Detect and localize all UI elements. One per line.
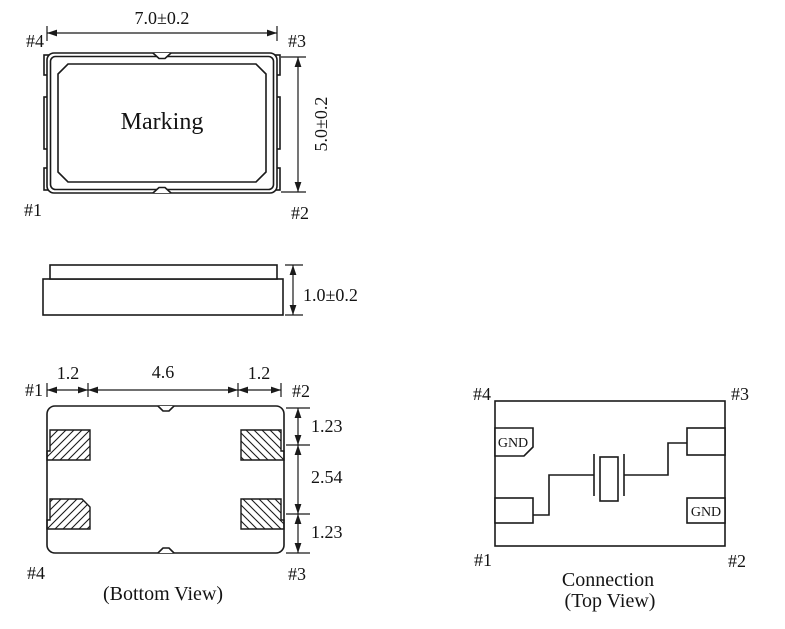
top-view-package-outline: Marking (44, 53, 280, 193)
pad-span-label: 4.6 (152, 362, 175, 382)
bottom-view-pin2-label: #2 (292, 381, 310, 401)
top-view-pin4-label: #4 (26, 31, 44, 51)
side-view-thickness-dimension: 1.0±0.2 (285, 265, 358, 315)
connection-pin3-label: #3 (731, 384, 749, 404)
bottom-view-pin1-label: #1 (25, 380, 43, 400)
top-view-pin3-label: #3 (288, 31, 306, 51)
gnd-label-pin4: GND (498, 436, 528, 451)
top-view-width-dimension: 7.0±0.2 (47, 8, 277, 41)
top-view-height-label: 5.0±0.2 (311, 97, 331, 152)
top-view-pin1-label: #1 (24, 200, 42, 220)
bottom-view-pin4-label: #4 (27, 563, 45, 583)
bottom-view-body (47, 406, 284, 553)
bottom-view-pin3-label: #3 (288, 564, 306, 584)
side-view-lid (50, 265, 277, 279)
pad-3 (241, 499, 284, 529)
connection-pad3 (687, 428, 725, 455)
bottom-view-package-outline (47, 406, 284, 553)
pad-1 (47, 430, 90, 460)
top-view-height-dimension: 5.0±0.2 (281, 57, 331, 192)
gnd-label-pin2: GND (691, 505, 721, 520)
connection-pad1 (495, 498, 533, 523)
connection-pin4-label: #4 (473, 384, 491, 404)
pad-pitch-top-label: 1.23 (311, 416, 343, 436)
side-view: 1.0±0.2 (43, 265, 358, 315)
connection-pin1-label: #1 (474, 550, 492, 570)
side-view-thickness-label: 1.0±0.2 (303, 285, 358, 305)
drawing-canvas: 7.0±0.2 Marking 5.0±0.2 #4 #3 #1 # (0, 0, 785, 624)
pad-pitch-bottom-label: 1.23 (311, 522, 343, 542)
bottom-view: 1.2 4.6 1.2 1.23 2.54 1.23 # (25, 362, 343, 605)
package-outline-drawing: 7.0±0.2 Marking 5.0±0.2 #4 #3 #1 # (0, 0, 785, 624)
connection-view: GND GND #4 #3 #1 #2 Connection (Top View… (473, 384, 749, 612)
pad-pitch-middle-label: 2.54 (311, 467, 343, 487)
connection-caption-line2: (Top View) (565, 590, 656, 612)
marking-label: Marking (121, 109, 204, 135)
connection-pin2-label: #2 (728, 551, 746, 571)
bottom-view-horizontal-dimension: 1.2 4.6 1.2 (47, 362, 281, 397)
top-view-pin2-label: #2 (291, 203, 309, 223)
connection-caption-line1: Connection (562, 569, 654, 591)
top-view-width-label: 7.0±0.2 (135, 8, 190, 28)
bottom-view-vertical-dimension: 1.23 2.54 1.23 (286, 408, 343, 553)
top-view: 7.0±0.2 Marking 5.0±0.2 #4 #3 #1 # (24, 8, 331, 223)
pad-width-left-label: 1.2 (57, 363, 80, 383)
pad-2 (241, 430, 284, 460)
pad-4 (47, 499, 90, 529)
bottom-view-caption: (Bottom View) (103, 583, 223, 605)
side-view-base (43, 279, 283, 315)
pad-width-right-label: 1.2 (248, 363, 271, 383)
